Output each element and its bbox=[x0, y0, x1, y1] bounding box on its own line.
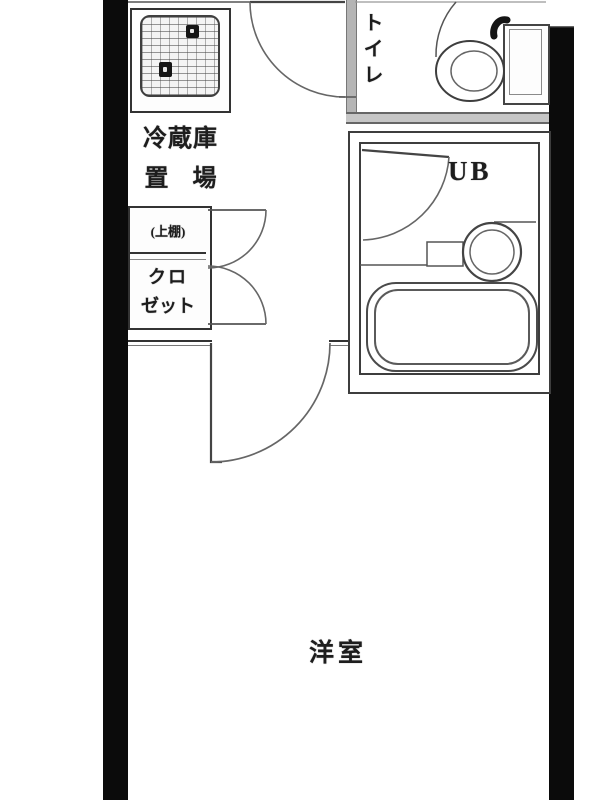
floor-plan: 冷蔵庫 置 場 (上棚) クロ ゼット トイレ UB 洋室 bbox=[0, 0, 600, 800]
toilet-tank-lid bbox=[509, 29, 542, 95]
sink-drain-dot bbox=[163, 67, 167, 72]
room-door-swing-arc bbox=[211, 343, 330, 462]
toilet-door-swing-arc bbox=[436, 2, 456, 57]
closet-label-line2: ゼット bbox=[128, 292, 208, 318]
hall-room-wall-right-segment bbox=[329, 340, 350, 346]
toilet-seat-line bbox=[451, 51, 497, 91]
closet-door-bottom-arc bbox=[208, 266, 266, 324]
closet-door-top-arc bbox=[208, 210, 266, 268]
kitchen-sink-stove-icon bbox=[140, 15, 220, 97]
room-door-leaf bbox=[211, 343, 222, 462]
toilet-left-wall bbox=[346, 0, 357, 116]
closet-label-line1: クロ bbox=[128, 263, 208, 289]
toilet-bowl-icon bbox=[436, 41, 504, 101]
bathtub-inner-rim bbox=[374, 289, 530, 365]
entrance-door-swing-arc bbox=[250, 2, 345, 97]
stove-knob-dot bbox=[190, 29, 194, 33]
outer-wall-right bbox=[549, 27, 574, 800]
upper-shelf-label: (上棚) bbox=[128, 221, 208, 240]
toilet-label: トイレ bbox=[360, 12, 386, 122]
outer-wall-left bbox=[103, 0, 128, 800]
closet-shelf-divider bbox=[130, 252, 206, 260]
western-room-label: 洋室 bbox=[298, 633, 378, 669]
refrigerator-space-label-line1: 冷蔵庫 bbox=[133, 118, 228, 153]
hall-room-wall-left-segment bbox=[128, 340, 212, 346]
refrigerator-space-label-line2: 置 場 bbox=[133, 158, 228, 193]
unit-bath-label: UB bbox=[448, 156, 492, 187]
